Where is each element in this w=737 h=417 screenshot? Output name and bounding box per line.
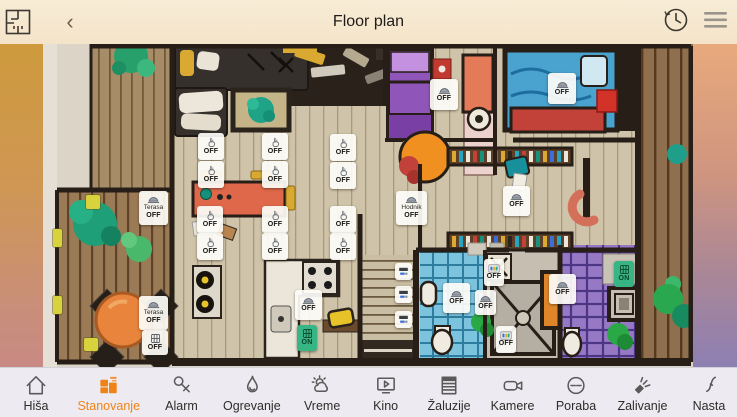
control-state-label: OFF bbox=[268, 176, 283, 185]
control-state-label: OFF bbox=[404, 212, 419, 221]
hand-icon bbox=[338, 210, 349, 221]
on-switch[interactable]: ON bbox=[614, 261, 634, 287]
lamp-icon bbox=[405, 195, 418, 204]
bar-icon bbox=[397, 313, 410, 326]
hand-icon bbox=[270, 137, 281, 148]
nav-label: Nasta bbox=[693, 399, 726, 413]
hand-icon bbox=[270, 165, 281, 176]
lamp-icon bbox=[510, 192, 523, 201]
lamp-icon bbox=[479, 294, 492, 303]
control-state-label: ON bbox=[619, 275, 630, 284]
lamp-icon bbox=[147, 195, 160, 204]
house-icon bbox=[23, 373, 49, 398]
control-state-label: OFF bbox=[487, 273, 502, 282]
control-state-label: OFF bbox=[336, 177, 351, 186]
control-state-label: OFF bbox=[555, 89, 570, 98]
corridor-light[interactable]: OFF bbox=[503, 186, 530, 216]
appliance-switch[interactable]: OFF bbox=[496, 326, 516, 353]
cinema-icon bbox=[373, 373, 399, 398]
nav-label: Kamere bbox=[491, 399, 535, 413]
hand-icon bbox=[206, 137, 217, 148]
hand-icon bbox=[205, 210, 216, 221]
blind-control[interactable] bbox=[395, 286, 412, 303]
control-state-label: OFF bbox=[336, 221, 351, 230]
control-state-label: OFF bbox=[203, 221, 218, 230]
sprinkler-icon bbox=[629, 373, 655, 398]
header: ‹ Floor plan bbox=[0, 0, 737, 44]
nav-label: Ogrevanje bbox=[223, 399, 281, 413]
control-state-label: OFF bbox=[148, 344, 163, 353]
grill-icon bbox=[302, 328, 313, 339]
floorplan-icon bbox=[96, 373, 122, 398]
nav-item-stanovanje[interactable]: Stanovanje bbox=[77, 373, 140, 413]
control-state-label: OFF bbox=[146, 317, 161, 326]
nav-label: Kino bbox=[373, 399, 398, 413]
blinds-icon bbox=[436, 373, 462, 398]
flame-icon bbox=[239, 373, 265, 398]
lamp-icon bbox=[147, 300, 160, 309]
right-gradient-panel bbox=[693, 44, 737, 367]
control-state-label: OFF bbox=[268, 148, 283, 157]
nav-label: Vreme bbox=[304, 399, 340, 413]
tool-icon bbox=[696, 373, 722, 398]
light-switch[interactable]: OFF bbox=[262, 133, 288, 160]
page-title: Floor plan bbox=[0, 0, 737, 44]
nav-item-nastavitve[interactable]: Nasta bbox=[687, 373, 731, 413]
control-state-label: OFF bbox=[336, 248, 351, 257]
left-gradient-panel bbox=[0, 44, 43, 367]
control-room-label: Terasa bbox=[144, 204, 164, 212]
lamp-icon bbox=[556, 80, 569, 89]
light-switch[interactable]: OFF bbox=[197, 206, 223, 233]
control-state-label: OFF bbox=[509, 201, 524, 210]
nav-item-zalivanje[interactable]: Zalivanje bbox=[617, 373, 667, 413]
key-icon bbox=[169, 373, 195, 398]
light-switch[interactable]: OFF bbox=[262, 206, 288, 233]
bedroom-light[interactable]: OFF bbox=[548, 73, 576, 104]
lamp-icon bbox=[450, 289, 463, 298]
control-state-label: OFF bbox=[268, 248, 283, 257]
nav-item-kino[interactable]: Kino bbox=[364, 373, 408, 413]
shower-light[interactable]: OFF bbox=[475, 290, 496, 315]
light-switch[interactable]: OFF bbox=[330, 162, 356, 189]
control-state-label: OFF bbox=[301, 305, 316, 314]
nav-item-kamere[interactable]: Kamere bbox=[491, 373, 535, 413]
camera-icon bbox=[500, 373, 526, 398]
nav-label: Zalivanje bbox=[617, 399, 667, 413]
light-switch[interactable]: OFF bbox=[330, 134, 356, 161]
control-state-label: OFF bbox=[268, 221, 283, 230]
dots-icon bbox=[500, 331, 512, 340]
nav-item-hisa[interactable]: Hiša bbox=[14, 373, 58, 413]
terrace-light[interactable]: TerasaOFF bbox=[139, 296, 168, 330]
nav-label: Žaluzije bbox=[428, 399, 471, 413]
control-state-label: OFF bbox=[336, 149, 351, 158]
light-switch[interactable]: OFF bbox=[198, 133, 224, 160]
light-switch[interactable]: OFF bbox=[330, 233, 356, 260]
control-state-label: OFF bbox=[555, 289, 570, 298]
light-switch[interactable]: OFF bbox=[198, 161, 224, 188]
hand-icon bbox=[338, 237, 349, 248]
control-state-label: OFF bbox=[437, 95, 452, 104]
control-state-label: OFF bbox=[146, 212, 161, 221]
hand-icon bbox=[206, 165, 217, 176]
nav-item-vreme[interactable]: Vreme bbox=[300, 373, 344, 413]
nav-label: Stanovanje bbox=[77, 399, 140, 413]
hand-icon bbox=[338, 138, 349, 149]
nav-item-poraba[interactable]: Poraba bbox=[554, 373, 598, 413]
dots-icon bbox=[488, 264, 500, 273]
hand-icon bbox=[270, 237, 281, 248]
control-room-label: Terasa bbox=[144, 309, 164, 317]
kitchen-light[interactable]: OFF bbox=[295, 290, 322, 320]
weather-icon bbox=[309, 373, 335, 398]
bathroom-light[interactable]: OFF bbox=[549, 274, 576, 304]
grill-icon bbox=[150, 333, 161, 344]
terrace-aux-switch[interactable]: OFF bbox=[142, 330, 168, 355]
bathroom-light[interactable]: OFF bbox=[443, 283, 470, 313]
history-button[interactable] bbox=[660, 5, 690, 40]
hand-icon bbox=[338, 166, 349, 177]
light-switch[interactable]: OFF bbox=[330, 206, 356, 233]
blind-control[interactable] bbox=[395, 263, 412, 280]
bar-icon bbox=[397, 288, 410, 301]
nav-item-ogrevanje[interactable]: Ogrevanje bbox=[223, 373, 281, 413]
nav-label: Poraba bbox=[556, 399, 596, 413]
hand-icon bbox=[270, 210, 281, 221]
on-switch[interactable]: ON bbox=[297, 325, 317, 351]
control-state-label: OFF bbox=[499, 340, 514, 349]
menu-button[interactable] bbox=[702, 8, 729, 37]
control-room-label: Hodnik bbox=[401, 204, 421, 212]
light-switch[interactable]: OFF bbox=[262, 233, 288, 260]
appliance-switch[interactable]: OFF bbox=[484, 259, 504, 286]
nav-item-zaluzije[interactable]: Žaluzije bbox=[427, 373, 471, 413]
grill-icon bbox=[619, 264, 630, 275]
nav-item-alarm[interactable]: Alarm bbox=[160, 373, 204, 413]
hallway-light[interactable]: HodnikOFF bbox=[396, 191, 427, 225]
gauge-icon bbox=[563, 373, 589, 398]
control-state-label: OFF bbox=[204, 176, 219, 185]
control-state-label: OFF bbox=[449, 298, 464, 307]
control-state-label: OFF bbox=[203, 248, 218, 257]
hand-icon bbox=[205, 237, 216, 248]
control-state-label: OFF bbox=[478, 303, 493, 312]
lamp-icon bbox=[302, 296, 315, 305]
nav-label: Hiša bbox=[23, 399, 48, 413]
bottom-nav: HišaStanovanjeAlarmOgrevanjeVremeKinoŽal… bbox=[0, 367, 737, 417]
terrace-light[interactable]: TerasaOFF bbox=[139, 191, 168, 225]
control-state-label: OFF bbox=[204, 148, 219, 157]
blind-control[interactable] bbox=[395, 311, 412, 328]
light-switch[interactable]: OFF bbox=[197, 233, 223, 260]
lamp-icon bbox=[438, 86, 451, 95]
control-state-label: ON bbox=[302, 339, 313, 348]
bedroom-light[interactable]: OFF bbox=[430, 79, 458, 110]
nav-label: Alarm bbox=[165, 399, 198, 413]
lamp-icon bbox=[556, 280, 569, 289]
bar-icon bbox=[397, 265, 410, 278]
light-switch[interactable]: OFF bbox=[262, 161, 288, 188]
